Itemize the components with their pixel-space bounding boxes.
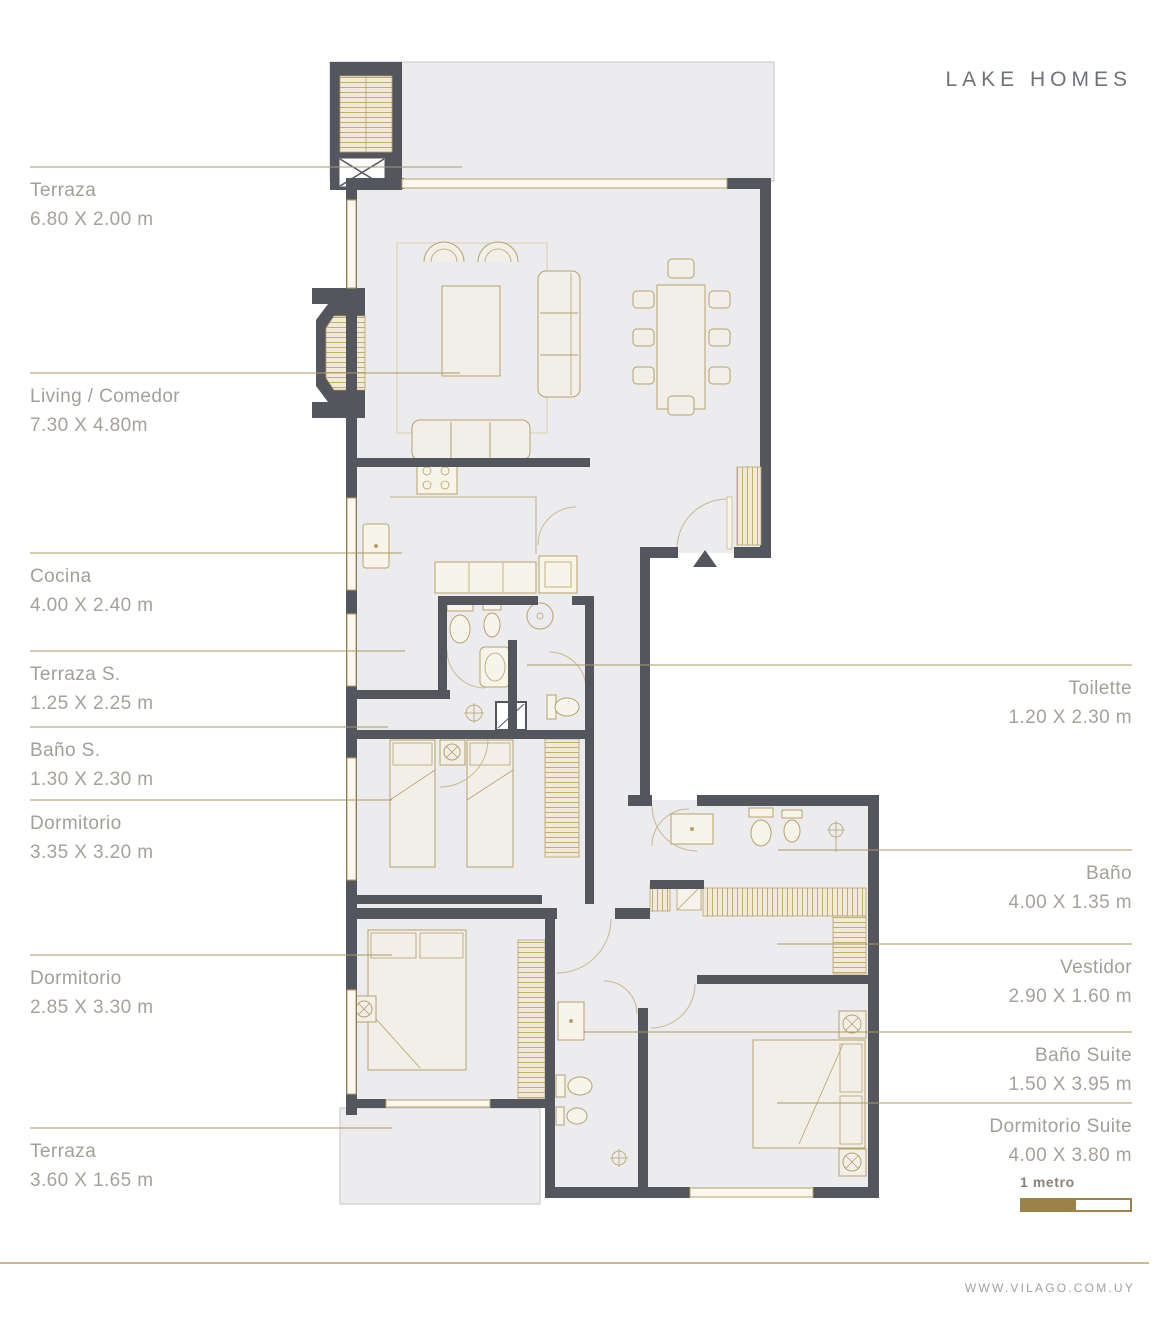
bay-window xyxy=(312,288,365,418)
footer-divider xyxy=(0,1262,1149,1264)
room-name: Baño xyxy=(1086,863,1132,884)
room-label-dormitorio-1: Dormitorio 3.35 X 3.20 m xyxy=(30,809,154,867)
dining-table xyxy=(657,285,705,409)
single-bed xyxy=(467,740,513,867)
window-band xyxy=(402,179,727,188)
nightstand-lamp-icon xyxy=(440,740,465,765)
double-bed xyxy=(753,1040,865,1148)
room-dims: 2.90 X 1.60 m xyxy=(1009,982,1133,1011)
room-name: Living / Comedor xyxy=(30,386,180,407)
room-dims: 7.30 X 4.80m xyxy=(30,411,180,440)
room-dims: 3.60 X 1.65 m xyxy=(30,1166,154,1195)
room-dims: 4.00 X 2.40 m xyxy=(30,591,154,620)
wardrobe xyxy=(703,888,866,916)
room-name: Terraza S. xyxy=(30,664,121,685)
room-label-bano-suite: Baño Suite 1.50 X 3.95 m xyxy=(1009,1041,1133,1099)
bidet-icon xyxy=(556,1107,587,1125)
room-dims: 1.30 X 2.30 m xyxy=(30,765,154,794)
room-name: Toilette xyxy=(1069,678,1132,699)
entry-closet xyxy=(737,467,761,545)
room-label-bano-s: Baño S. 1.30 X 2.30 m xyxy=(30,736,154,794)
bidet-icon xyxy=(483,601,501,637)
room-label-dormitorio-suite: Dormitorio Suite 4.00 X 3.80 m xyxy=(989,1112,1132,1170)
coffee-table xyxy=(442,286,500,376)
room-name: Vestidor xyxy=(1060,957,1132,978)
kitchen-island xyxy=(435,562,536,593)
washbasin-icon xyxy=(480,647,510,687)
sofa-right xyxy=(538,271,580,397)
room-label-toilette: Toilette 1.20 X 2.30 m xyxy=(1009,674,1133,732)
floor-plan-page: LAKE HOMES Terraza 6.80 X 2.00 m Living … xyxy=(0,0,1170,1322)
room-dims: 1.25 X 2.25 m xyxy=(30,689,154,718)
room-dims: 4.00 X 1.35 m xyxy=(1009,888,1133,917)
closet xyxy=(518,940,545,1098)
room-name: Dormitorio Suite xyxy=(989,1116,1132,1137)
scale-bar-filled xyxy=(1022,1200,1076,1210)
room-dims: 4.00 X 3.80 m xyxy=(989,1141,1132,1170)
room-label-vestidor: Vestidor 2.90 X 1.60 m xyxy=(1009,953,1133,1011)
room-name: Cocina xyxy=(30,566,92,587)
room-label-bano: Baño 4.00 X 1.35 m xyxy=(1009,859,1133,917)
room-label-terraza-bottom: Terraza 3.60 X 1.65 m xyxy=(30,1137,154,1195)
double-bed xyxy=(368,930,466,1070)
single-bed xyxy=(390,740,435,867)
nightstand-lamp-icon xyxy=(839,1149,866,1176)
room-label-terraza-s: Terraza S. 1.25 X 2.25 m xyxy=(30,660,154,718)
nightstand-lamp-icon xyxy=(839,1011,866,1038)
closet xyxy=(545,739,579,857)
footer-url: WWW.VILAGO.COM.UY xyxy=(965,1281,1135,1295)
room-name: Dormitorio xyxy=(30,813,122,834)
page-title: LAKE HOMES xyxy=(945,68,1132,92)
scale-label: 1 metro xyxy=(1020,1174,1075,1190)
stairwell xyxy=(330,62,402,190)
room-dims: 3.35 X 3.20 m xyxy=(30,838,154,867)
terrace-bottom-floor xyxy=(340,1108,540,1204)
room-dims: 2.85 X 3.30 m xyxy=(30,993,154,1022)
room-label-terraza-top: Terraza 6.80 X 2.00 m xyxy=(30,176,154,234)
room-label-dormitorio-2: Dormitorio 2.85 X 3.30 m xyxy=(30,964,154,1022)
room-name: Terraza xyxy=(30,180,96,201)
stove-icon xyxy=(417,463,457,494)
scale-bar xyxy=(1020,1198,1132,1212)
toilet-icon xyxy=(749,808,773,846)
room-name: Baño Suite xyxy=(1035,1045,1132,1066)
entrance-door-leaf xyxy=(727,497,732,549)
scale-bar-empty xyxy=(1076,1200,1130,1210)
room-name: Terraza xyxy=(30,1141,96,1162)
room-dims: 1.20 X 2.30 m xyxy=(1009,703,1133,732)
room-label-cocina: Cocina 4.00 X 2.40 m xyxy=(30,562,154,620)
wardrobe xyxy=(833,916,866,974)
room-name: Baño S. xyxy=(30,740,100,761)
sofa-bottom xyxy=(412,420,530,460)
corner-shelf xyxy=(677,886,701,910)
bidet-icon xyxy=(782,810,802,842)
toilet-icon xyxy=(556,1075,592,1097)
room-dims: 6.80 X 2.00 m xyxy=(30,205,154,234)
room-label-living: Living / Comedor 7.30 X 4.80m xyxy=(30,382,180,440)
room-dims: 1.50 X 3.95 m xyxy=(1009,1070,1133,1099)
room-name: Dormitorio xyxy=(30,968,122,989)
